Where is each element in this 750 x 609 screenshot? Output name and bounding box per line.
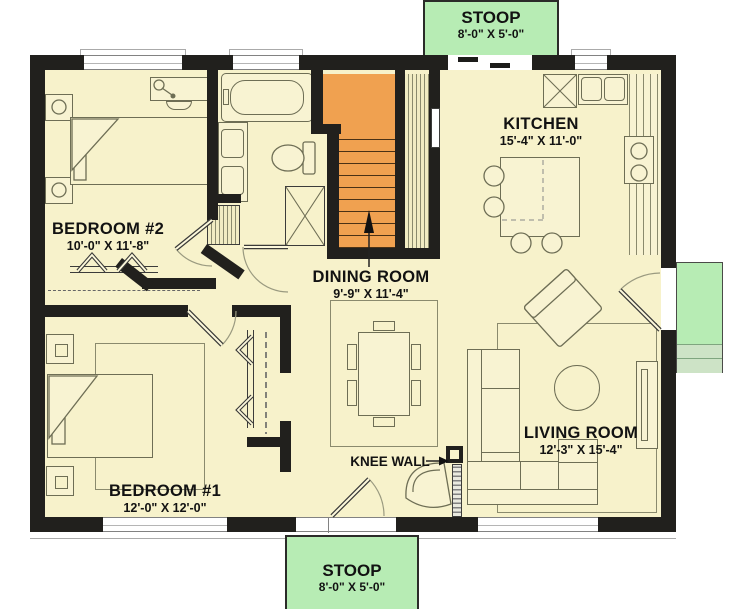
dining-chair	[411, 344, 421, 370]
kitchen-island	[500, 157, 580, 237]
wall-entry-closet-upper	[280, 317, 291, 373]
sliding-door-panel	[458, 57, 478, 62]
wall-stair-left-upper	[311, 70, 323, 130]
deck-step	[677, 344, 722, 359]
staircase	[339, 128, 395, 248]
front-door-opening	[296, 517, 396, 532]
deck-door-opening	[661, 268, 676, 330]
nightstand	[45, 177, 73, 204]
desk	[150, 77, 208, 101]
kitchen-sink	[578, 74, 628, 105]
tv-console	[636, 361, 658, 449]
bedroom2-label: BEDROOM #2 10'-0" X 11'-8"	[52, 220, 164, 253]
dining-chair	[347, 344, 357, 370]
wall-hall	[142, 278, 216, 289]
sink-basin	[581, 77, 602, 101]
shower	[285, 186, 325, 246]
bed-bedroom1	[47, 374, 153, 458]
bathtub-basin	[230, 80, 304, 115]
wall-exterior-left	[30, 55, 45, 532]
window-living	[478, 517, 598, 532]
stove	[624, 136, 654, 184]
coffee-table	[554, 365, 600, 411]
stoop-top: STOOP 8'-0" X 5'-0"	[423, 0, 559, 57]
wall-closet-bottom	[247, 437, 291, 447]
stoop-top-dims: 8'-0" X 5'-0"	[425, 27, 557, 41]
sliding-door-panel	[490, 63, 510, 68]
wall-stair-left-lower	[327, 128, 339, 254]
wall-bedroom1-north-west	[38, 305, 188, 317]
closet-opening-bedroom1	[247, 330, 254, 428]
closet-opening-bedroom2	[70, 266, 158, 273]
door-jamb	[328, 518, 329, 533]
window-bedroom1	[103, 517, 227, 532]
corner-cabinet	[543, 74, 577, 108]
sink	[221, 166, 244, 195]
stair-landing	[323, 74, 395, 128]
wall-bedroom1-north-east	[232, 305, 291, 317]
back-door	[448, 55, 532, 70]
window-bedroom2	[84, 55, 182, 70]
pantry-shelves	[405, 74, 429, 250]
knee-wall	[452, 464, 462, 517]
stoop-bottom-dims: 8'-0" X 5'-0"	[287, 580, 417, 594]
nightstand	[46, 334, 74, 364]
bed-bedroom2	[70, 117, 208, 185]
bedroom1-label: BEDROOM #1 12'-0" X 12'-0"	[109, 482, 221, 515]
dining-label: DINING ROOM 9'-9" X 11'-4"	[313, 268, 430, 301]
dining-table	[358, 332, 410, 416]
stoop-bottom-label: STOOP	[287, 561, 417, 580]
dining-chair	[347, 380, 357, 406]
nightstand	[46, 466, 74, 496]
closet-rod-bedroom2	[48, 290, 200, 291]
window-bathroom	[233, 55, 299, 70]
wall-stair-bottom	[327, 248, 439, 259]
pantry-door	[431, 108, 440, 148]
sofa-section-horizontal	[467, 461, 598, 505]
side-deck	[676, 262, 723, 373]
stoop-bottom: STOOP 8'-0" X 5'-0"	[285, 535, 419, 609]
dining-chair	[411, 380, 421, 406]
window-kitchen	[575, 55, 607, 70]
sink	[221, 129, 244, 158]
nightstand	[45, 94, 73, 121]
sink-basin	[604, 77, 625, 101]
wall-linen-top	[207, 194, 241, 203]
deck-step	[677, 358, 722, 373]
kitchen-label: KITCHEN 15'-4" X 11'-0"	[500, 115, 582, 148]
bathtub-faucet	[223, 89, 229, 105]
living-label: LIVING ROOM 12'-3" X 15'-4"	[524, 424, 638, 457]
stoop-top-label: STOOP	[425, 8, 557, 27]
vanity	[218, 122, 248, 202]
wall-stair-right	[395, 70, 405, 258]
knee-wall-post-center	[450, 450, 459, 459]
wall-pantry-right	[429, 70, 440, 259]
floor-plan: STOOP 8'-0" X 5'-0" STOOP 8'-0" X 5'-0"	[0, 0, 750, 609]
bathtub	[221, 73, 313, 122]
knee-wall-label: KNEE WALL	[350, 454, 430, 469]
dining-chair	[373, 321, 395, 331]
dining-chair	[373, 417, 395, 427]
